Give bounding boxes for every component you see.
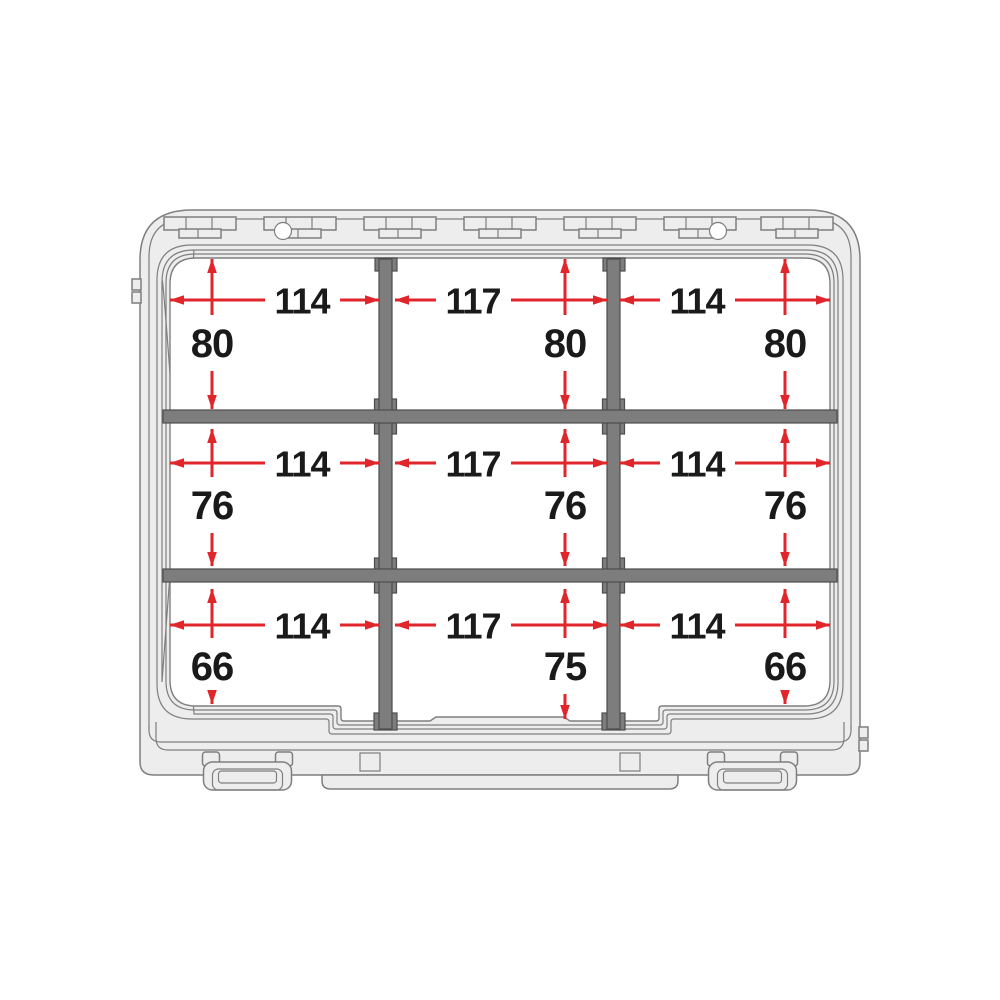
width-label: 117 (445, 281, 500, 322)
case-dimension-diagram: 114 117 114 114 117 114 114 117 114 80 8… (0, 0, 1000, 1000)
width-label: 114 (669, 606, 725, 647)
inner-opening (170, 258, 830, 721)
vertical-divider-1 (379, 259, 392, 729)
vertical-divider-2 (607, 259, 620, 729)
height-label: 80 (544, 322, 587, 366)
width-label: 114 (274, 606, 330, 647)
width-label: 114 (274, 281, 330, 322)
height-label: 66 (764, 645, 807, 689)
rim-hole-left (275, 223, 292, 240)
diagram-page: 114 117 114 114 117 114 114 117 114 80 8… (0, 0, 1000, 1000)
height-label: 66 (191, 645, 234, 689)
width-label: 114 (669, 444, 725, 485)
width-label: 117 (445, 444, 500, 485)
horizontal-divider-2 (163, 569, 837, 582)
height-label: 80 (764, 322, 807, 366)
width-label: 114 (274, 444, 330, 485)
width-label: 117 (445, 606, 500, 647)
height-label: 76 (191, 484, 234, 528)
bottom-lip (322, 775, 678, 789)
height-label: 80 (191, 322, 234, 366)
height-label: 75 (544, 645, 587, 689)
rim-hole-right (710, 223, 727, 240)
height-label: 76 (544, 484, 587, 528)
width-label: 114 (669, 281, 725, 322)
height-label: 76 (764, 484, 807, 528)
horizontal-divider-1 (163, 410, 837, 423)
